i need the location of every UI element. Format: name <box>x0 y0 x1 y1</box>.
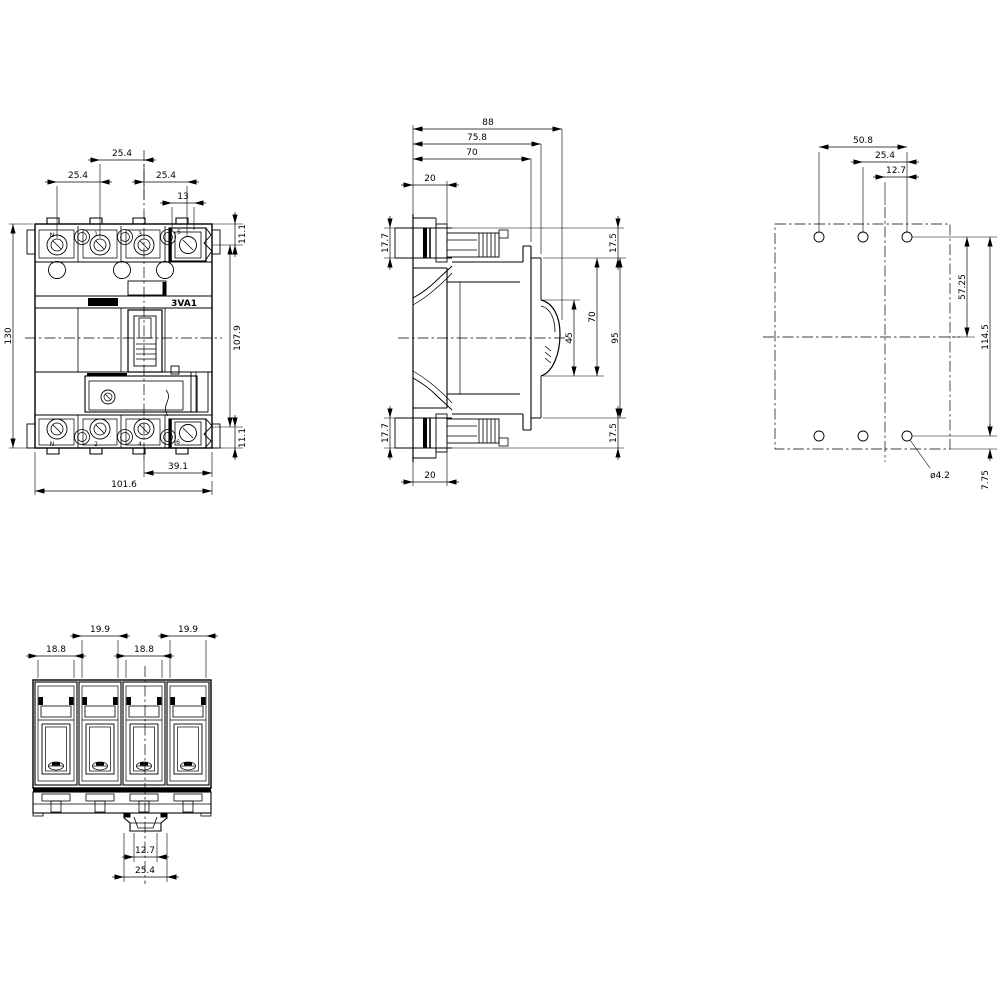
dimension-drawing: N 1 3 5 3VA1 <box>0 0 1000 1000</box>
extension-lines <box>38 640 206 882</box>
rating-window <box>128 281 166 295</box>
front-bottom-terminals: N 2 4 6 <box>39 390 212 448</box>
terminal-bay-4 <box>167 682 209 785</box>
hole-callout-leader <box>910 440 930 468</box>
mount-ear <box>27 230 35 254</box>
front-view: N 1 3 5 3VA1 <box>4 149 248 495</box>
dim-hole-diameter: ø4.2 <box>930 471 950 481</box>
base-band <box>33 788 211 792</box>
base-plate <box>33 792 211 813</box>
dim-terminal-height-bottom: 17.7 <box>381 423 391 443</box>
cage-screw <box>118 230 133 245</box>
pole-label: 5 <box>177 229 181 236</box>
dim-front-height: 95 <box>611 332 621 343</box>
dim-terminal-height-top: 17.7 <box>381 233 391 253</box>
dim-hole-pitch: 25.4 <box>875 151 895 161</box>
tslot <box>174 794 202 812</box>
bottom-dimensions: 19.9 19.9 18.8 18.8 12.7 25.4 <box>26 625 218 882</box>
dim-offset-bottom: 11.1 <box>238 428 248 448</box>
dim-half-pitch: 12.7 <box>886 166 906 176</box>
dim-handle-window: 45 <box>565 332 575 343</box>
connector-cap <box>499 230 508 238</box>
dim-slot3: 18.8 <box>134 645 154 655</box>
side-view: 88 75.8 70 20 17.7 17.7 20 17.5 <box>381 118 626 486</box>
dim-width: 101.6 <box>111 480 137 490</box>
dim-tab-outer: 25.4 <box>135 866 155 876</box>
drilling-view: 50.8 25.4 12.7 57.25 114.5 7.75 ø4.2 <box>763 136 997 490</box>
dim-pitch-mid: 25.4 <box>112 149 132 159</box>
vent-circle <box>49 262 66 279</box>
bottom-view: 19.9 19.9 18.8 18.8 12.7 25.4 <box>26 625 218 884</box>
accessory-square <box>171 366 179 374</box>
dim-pitch-right: 25.4 <box>156 171 176 181</box>
dim-offset-top: 11.1 <box>238 224 248 244</box>
cage-screw <box>161 230 176 245</box>
pole-label: N <box>50 441 55 448</box>
terminal-bay-2 <box>79 682 121 785</box>
front-bottom-tabs <box>47 448 188 454</box>
extension-lines <box>819 152 997 449</box>
pole-label: 4 <box>138 441 142 448</box>
front-middle: 3VA1 <box>88 281 197 374</box>
connector-cap <box>499 438 508 446</box>
tslot <box>130 794 158 812</box>
break-line <box>204 228 212 261</box>
drawing-canvas: N 1 3 5 3VA1 <box>0 0 1000 1000</box>
dim-cover-height-bottom: 17.5 <box>609 423 619 443</box>
pole-label: 1 <box>94 231 98 238</box>
terminal-bay-1 <box>35 682 77 785</box>
vent-circle <box>114 262 131 279</box>
dim-height: 130 <box>4 327 14 344</box>
dim-depth-body: 70 <box>466 148 478 158</box>
dim-terminal-depth-top: 20 <box>424 174 436 184</box>
dim-terminal-span: 107.9 <box>233 325 243 351</box>
dim-center-to-row: 57.25 <box>958 274 968 300</box>
mounting-hole <box>858 232 868 242</box>
mounting-hole <box>902 431 912 441</box>
dim-tab-inner: 12.7 <box>135 846 155 856</box>
breakout-terminal-top <box>169 228 212 261</box>
dim-slot1: 18.8 <box>46 645 66 655</box>
dim-center-to-edge: 39.1 <box>168 462 188 472</box>
product-type-label: 3VA1 <box>171 299 197 309</box>
cage-screw <box>75 430 90 445</box>
mount-ear <box>27 424 35 448</box>
breakout-terminal-bottom <box>165 390 212 448</box>
dim-cover-height-top: 17.5 <box>609 233 619 253</box>
dim-pitch-left: 25.4 <box>68 171 88 181</box>
pole-label: N <box>50 232 55 239</box>
dim-terminal-depth-bottom: 20 <box>424 471 436 481</box>
cage-screw <box>118 430 133 445</box>
mount-ear <box>212 424 220 448</box>
toggle-handle <box>128 310 162 372</box>
terminal-block-bottom <box>436 414 447 452</box>
rating-plate-fineprint <box>87 373 127 376</box>
din-tab <box>124 813 167 831</box>
side-body <box>395 214 572 462</box>
dim-hole-span: 50.8 <box>853 136 873 146</box>
tslot <box>86 794 114 812</box>
mounting-hole <box>858 431 868 441</box>
mount-ear <box>212 230 220 254</box>
brand-logo-plate <box>88 298 118 306</box>
mounting-hole <box>814 232 824 242</box>
handle-grip-hatch <box>545 346 551 363</box>
mounting-hole <box>814 431 824 441</box>
accessory-box <box>191 372 208 412</box>
cage-screw <box>75 230 90 245</box>
dim-n-width: 13 <box>177 192 188 202</box>
cage-screw <box>161 430 176 445</box>
front-top-terminals: N 1 3 5 <box>39 228 212 261</box>
mounting-hole <box>902 232 912 242</box>
break-line <box>204 419 212 448</box>
dim-escutcheon-height: 70 <box>588 311 598 323</box>
front-horizontal-seams <box>35 262 212 415</box>
tslot <box>42 794 70 812</box>
contact-bar-bottom <box>423 418 427 448</box>
dim-depth-total: 88 <box>482 118 494 128</box>
drilling-dimensions: 50.8 25.4 12.7 57.25 114.5 7.75 ø4.2 <box>819 136 997 490</box>
pole-label: 3 <box>138 231 142 238</box>
dim-slot2: 19.9 <box>90 625 110 635</box>
dim-depth-escutcheon: 75.8 <box>467 133 487 143</box>
terminal-bay-3 <box>123 682 165 785</box>
bottom-shell <box>33 680 211 788</box>
rating-plate <box>85 372 208 412</box>
front-top-tabs <box>47 218 188 224</box>
contact-bar-top <box>423 228 427 258</box>
pole-label: 2 <box>94 441 98 448</box>
terminal-block-top <box>436 224 447 262</box>
dim-bottom-edge-offset: 7.75 <box>981 470 991 490</box>
connector-hatch <box>479 233 495 257</box>
rating-window-shadow <box>163 282 167 295</box>
dim-slot4: 19.9 <box>178 625 198 635</box>
pole-label: 6 <box>176 439 180 446</box>
drilling-outline-phantom <box>775 224 950 449</box>
dim-row-span: 114.5 <box>981 324 991 350</box>
vent-circle <box>157 262 174 279</box>
extension-lines <box>384 125 626 486</box>
